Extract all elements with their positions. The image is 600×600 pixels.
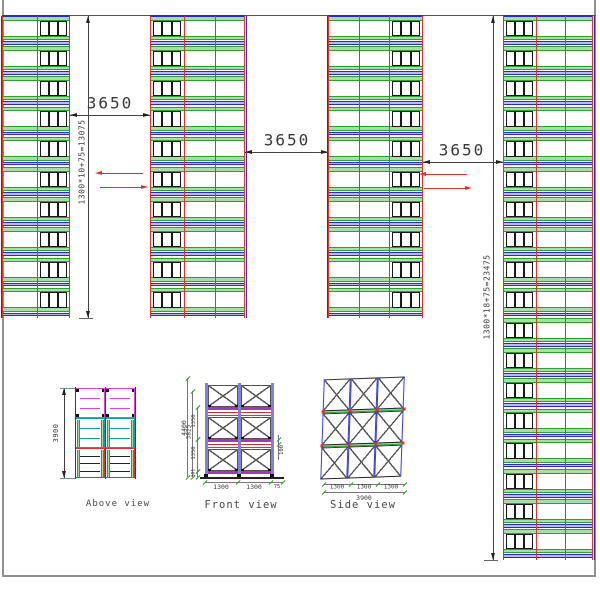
aisle-dim-line	[423, 162, 503, 163]
side-view-frame	[320, 376, 404, 480]
rail-band	[2, 156, 70, 161]
above-view-line	[80, 408, 100, 409]
beam-band	[503, 343, 593, 347]
above-view-line	[110, 456, 130, 457]
pallet	[506, 232, 533, 248]
pallet	[506, 21, 533, 37]
beam-band	[2, 132, 70, 136]
rail-band	[150, 247, 245, 252]
above-view-upright-line	[75, 387, 76, 479]
aisle-dim-label: 3650	[264, 131, 311, 150]
rail-band	[150, 217, 245, 222]
above-view-line	[110, 408, 130, 409]
front-pallet-box	[208, 417, 238, 439]
pallet	[506, 51, 533, 67]
pallet-divider	[400, 52, 402, 66]
pallet-divider	[161, 52, 163, 66]
beam-band	[328, 41, 423, 45]
strip-upright-line	[503, 16, 504, 560]
beam-band	[503, 524, 593, 528]
pallet-divider	[400, 22, 402, 36]
pallet	[40, 232, 67, 248]
beam-band	[150, 132, 245, 136]
strip-upright-line	[592, 16, 593, 560]
dim-arrow	[245, 150, 252, 154]
pallet	[40, 81, 67, 97]
side-node	[349, 409, 352, 412]
side-dim-label: 1300	[384, 484, 398, 491]
pallet-divider	[57, 203, 59, 217]
strip-upright-line	[2, 16, 3, 318]
rail-band	[328, 187, 423, 192]
front-ground-line	[200, 477, 284, 479]
pallet-divider	[161, 82, 163, 96]
pallet-divider	[514, 82, 516, 96]
beam-band	[150, 162, 245, 166]
strip-upright-line	[37, 16, 38, 318]
rail-band	[328, 307, 423, 312]
pallet-divider	[161, 142, 163, 156]
pallet-divider	[523, 263, 525, 277]
pallet	[392, 202, 420, 218]
pallet-divider	[57, 293, 59, 307]
pallet-divider	[161, 203, 163, 217]
pallet-divider	[161, 233, 163, 247]
pallet-divider	[523, 52, 525, 66]
pallet-divider	[523, 82, 525, 96]
above-view-line	[80, 398, 100, 399]
pallet	[153, 51, 181, 67]
pallet-divider	[514, 203, 516, 217]
pallet-divider	[400, 293, 402, 307]
rail-band	[503, 36, 593, 41]
side-node	[401, 442, 404, 445]
side-frame-cell	[377, 376, 405, 408]
rail-band	[2, 96, 70, 101]
side-node	[376, 408, 379, 411]
strip-upright-line	[359, 16, 360, 318]
pallet-divider	[48, 142, 50, 156]
above-view-rail	[101, 420, 104, 447]
rail-band	[503, 368, 593, 373]
pallet-divider	[514, 414, 516, 428]
pallet	[392, 51, 420, 67]
rail-band	[328, 156, 423, 161]
front-dim-label: 1350	[191, 446, 197, 459]
pallet	[153, 81, 181, 97]
side-dim-label: 1300	[330, 484, 344, 491]
rail-band	[503, 156, 593, 161]
rail-band	[150, 36, 245, 41]
rail-band	[2, 66, 70, 71]
above-view-line	[110, 438, 130, 439]
pallet-divider	[48, 263, 50, 277]
beam-band	[503, 313, 593, 317]
dim-arrow	[491, 16, 495, 23]
above-dim-label: 3900	[52, 424, 60, 443]
pallet-divider	[48, 112, 50, 126]
front-post	[271, 383, 274, 477]
aisle-dim-line	[70, 115, 150, 116]
beam-band	[2, 192, 70, 196]
side-dim-label: 1300	[357, 484, 371, 491]
rack-length-dim-line	[88, 16, 89, 318]
pallet	[40, 292, 67, 308]
pallet-divider	[523, 444, 525, 458]
pallet-divider	[523, 293, 525, 307]
pallet-divider	[161, 263, 163, 277]
beam-band	[503, 101, 593, 105]
rail-band	[328, 96, 423, 101]
beam-band	[328, 101, 423, 105]
pallet	[506, 504, 533, 520]
pallet	[153, 141, 181, 157]
pallet	[506, 141, 533, 157]
beam-band	[328, 222, 423, 226]
pallet-divider	[48, 52, 50, 66]
rail-band	[150, 187, 245, 192]
above-view-line	[110, 428, 130, 429]
aisle-dim-label: 3650	[87, 94, 134, 113]
beam-band	[2, 222, 70, 226]
beam-band	[328, 252, 423, 256]
beam-band	[328, 313, 423, 317]
pallet-divider	[514, 293, 516, 307]
pallet-divider	[57, 82, 59, 96]
pallet	[506, 443, 533, 459]
above-view-line	[110, 398, 130, 399]
pallet-divider	[410, 112, 412, 126]
pallet	[40, 111, 67, 127]
aisle-dim-label: 3650	[439, 141, 486, 160]
pallet-divider	[171, 233, 173, 247]
strip-upright-line	[244, 16, 245, 318]
pallet-divider	[514, 505, 516, 519]
rail-band	[150, 307, 245, 312]
rail-band	[503, 338, 593, 343]
pallet	[506, 292, 533, 308]
above-view-node	[102, 389, 105, 392]
flow-arrow-line	[424, 188, 467, 189]
strip-upright-line	[215, 16, 216, 318]
pallet-divider	[48, 22, 50, 36]
rail-band	[2, 217, 70, 222]
pallet-divider	[171, 22, 173, 36]
beam-band	[2, 252, 70, 256]
pallet-divider	[514, 384, 516, 398]
rail-band	[2, 247, 70, 252]
strip-top-line	[150, 15, 245, 17]
beam-band	[2, 283, 70, 287]
dim-arrow	[465, 186, 472, 190]
pallet-divider	[410, 22, 412, 36]
pallet	[392, 292, 420, 308]
beam-band	[503, 71, 593, 75]
dim-extension-line	[60, 478, 75, 479]
beam-band	[150, 41, 245, 45]
pallet-divider	[410, 233, 412, 247]
pallet-divider	[57, 263, 59, 277]
side-frame-cell	[320, 447, 348, 479]
pallet-divider	[514, 112, 516, 126]
cad-drawing-canvas: Above view Front view Side view 36503650…	[0, 0, 600, 600]
side-node	[374, 443, 377, 446]
above-view-line	[110, 463, 130, 464]
pallet-divider	[57, 112, 59, 126]
pallet-divider	[523, 233, 525, 247]
pallet-divider	[514, 142, 516, 156]
pallet-divider	[57, 142, 59, 156]
strip-upright-line	[328, 16, 329, 318]
above-view-upright-line	[105, 387, 106, 479]
side-frame-cell	[347, 446, 375, 478]
beam-band	[503, 283, 593, 287]
beam-band	[2, 313, 70, 317]
beam-band	[328, 192, 423, 196]
pallet-divider	[48, 203, 50, 217]
above-view-node	[132, 414, 135, 417]
pallet-divider	[514, 475, 516, 489]
dim-arrow	[496, 160, 503, 164]
pallet-divider	[48, 173, 50, 187]
rail-band	[503, 549, 593, 554]
flow-arrow-line	[100, 187, 143, 188]
beam-band	[150, 71, 245, 75]
strip-top-line	[328, 15, 423, 17]
rail-band	[2, 307, 70, 312]
rail-band	[503, 277, 593, 282]
rail-band	[503, 519, 593, 524]
pallet-divider	[400, 173, 402, 187]
pallet	[392, 81, 420, 97]
side-frame-cell	[349, 411, 377, 443]
pallet	[153, 232, 181, 248]
strip-upright-line	[536, 16, 537, 560]
beam-band	[150, 101, 245, 105]
above-view-line	[80, 428, 100, 429]
beam-band	[503, 464, 593, 468]
dim-arrow	[321, 150, 328, 154]
above-view-node	[106, 414, 109, 417]
pallet-divider	[400, 263, 402, 277]
pallet-divider	[514, 354, 516, 368]
side-node	[322, 410, 325, 413]
front-pallet-box	[241, 385, 271, 407]
pallet-divider	[48, 82, 50, 96]
strip-top-line	[2, 15, 70, 17]
rail-band	[503, 458, 593, 463]
front-dim-label: 1350	[191, 414, 197, 427]
pallet-divider	[57, 173, 59, 187]
front-pallet-box	[241, 449, 271, 471]
strip-top-line	[503, 15, 593, 17]
above-view-node	[106, 389, 109, 392]
pallet-divider	[57, 233, 59, 247]
pallet-divider	[514, 444, 516, 458]
above-view-rail	[131, 420, 134, 447]
rack-back-line	[594, 16, 595, 560]
rail-band	[2, 36, 70, 41]
rail-band	[150, 96, 245, 101]
pallet-divider	[161, 293, 163, 307]
dim-arrow	[423, 160, 430, 164]
rail-band	[2, 277, 70, 282]
dim-extension-line	[79, 318, 93, 319]
pallet	[153, 111, 181, 127]
pallet-divider	[523, 475, 525, 489]
beam-band	[328, 162, 423, 166]
front-post	[205, 383, 208, 477]
strip-upright-line	[69, 16, 70, 318]
beam-band	[328, 71, 423, 75]
rail-band	[328, 66, 423, 71]
pallet-divider	[514, 263, 516, 277]
strip-upright-line	[422, 16, 423, 318]
pallet	[392, 172, 420, 188]
side-frame-cell	[350, 377, 378, 409]
pallet	[506, 111, 533, 127]
aisle-dim-line	[245, 152, 328, 153]
pallet	[392, 232, 420, 248]
strip-upright-line	[150, 16, 151, 318]
pallet	[506, 383, 533, 399]
pallet-divider	[400, 233, 402, 247]
pallet	[40, 202, 67, 218]
rail-band	[2, 126, 70, 131]
pallet-divider	[523, 505, 525, 519]
pallet	[506, 262, 533, 278]
pallet	[506, 172, 533, 188]
flow-arrow-line	[424, 174, 467, 175]
pallet	[506, 202, 533, 218]
above-view-rail	[131, 450, 134, 477]
dim-arrow	[419, 172, 426, 176]
side-frame-cell	[322, 412, 350, 444]
above-view-line	[110, 471, 130, 472]
pallet-divider	[171, 112, 173, 126]
rail-band	[503, 247, 593, 252]
rail-band	[328, 247, 423, 252]
dim-arrow	[62, 471, 66, 478]
dim-arrow	[141, 185, 148, 189]
pallet-divider	[523, 414, 525, 428]
pallet-divider	[161, 173, 163, 187]
side-frame-cell	[375, 411, 403, 443]
beam-band	[328, 283, 423, 287]
above-view-line	[80, 456, 100, 457]
above-view-line	[80, 471, 100, 472]
beam-band	[503, 162, 593, 166]
pallet-divider	[48, 233, 50, 247]
pallet-divider	[410, 52, 412, 66]
rack-back-line	[246, 16, 247, 318]
pallet	[40, 21, 67, 37]
pallet-divider	[400, 203, 402, 217]
rail-band	[2, 187, 70, 192]
pallet-divider	[523, 354, 525, 368]
pallet-divider	[410, 293, 412, 307]
dim-arrow	[86, 311, 90, 318]
pallet	[153, 172, 181, 188]
rail-band	[328, 126, 423, 131]
rail-band	[150, 156, 245, 161]
pallet-divider	[514, 233, 516, 247]
beam-band	[2, 162, 70, 166]
rail-band	[503, 126, 593, 131]
beam-band	[503, 41, 593, 45]
dim-arrow	[491, 553, 495, 560]
pallet-divider	[171, 82, 173, 96]
front-dim-label: 75	[274, 484, 281, 490]
pallet	[392, 111, 420, 127]
strip-upright-line	[565, 16, 566, 560]
above-view-rail	[101, 450, 104, 477]
front-dim-label: 381	[192, 469, 197, 477]
pallet-divider	[514, 535, 516, 549]
rail-band	[503, 96, 593, 101]
pallet-divider	[400, 82, 402, 96]
beam-band	[328, 132, 423, 136]
rail-band	[150, 66, 245, 71]
beam-band	[150, 222, 245, 226]
front-post	[238, 383, 241, 477]
dim-extension-line	[484, 560, 498, 561]
pallet	[153, 202, 181, 218]
rail-band	[328, 277, 423, 282]
pallet-divider	[514, 52, 516, 66]
above-view-rail	[107, 420, 110, 447]
side-node	[347, 443, 350, 446]
pallet-divider	[523, 324, 525, 338]
pallet-divider	[523, 203, 525, 217]
dim-arrow	[95, 171, 102, 175]
dim-extension-line	[60, 388, 75, 389]
pallet-divider	[57, 52, 59, 66]
side-node	[320, 444, 323, 447]
rail-band	[328, 217, 423, 222]
above-dim-line	[64, 388, 65, 478]
rail-band	[503, 398, 593, 403]
pallet	[40, 51, 67, 67]
above-view-upright-line	[135, 387, 136, 479]
rail-band	[503, 187, 593, 192]
pallet-divider	[523, 384, 525, 398]
pallet-divider	[171, 142, 173, 156]
pallet-divider	[48, 293, 50, 307]
above-view-line	[80, 463, 100, 464]
pallet-divider	[57, 22, 59, 36]
rack-length-dim-label: 1300*10+75=13075	[78, 119, 87, 204]
beam-band	[150, 313, 245, 317]
strip-upright-line	[389, 16, 390, 318]
pallet-divider	[514, 22, 516, 36]
pallet-divider	[161, 112, 163, 126]
pallet	[153, 262, 181, 278]
pallet	[392, 262, 420, 278]
front-dim-line	[197, 407, 198, 439]
rail-band	[503, 66, 593, 71]
pallet-divider	[410, 82, 412, 96]
front-dim-label: 1300	[246, 483, 262, 491]
above-view-cell	[105, 388, 135, 418]
pallet-divider	[171, 173, 173, 187]
pallet	[153, 292, 181, 308]
beam-band	[150, 283, 245, 287]
dim-arrow	[62, 388, 66, 395]
pallet-divider	[523, 535, 525, 549]
rail-band	[150, 277, 245, 282]
beam-band	[503, 252, 593, 256]
